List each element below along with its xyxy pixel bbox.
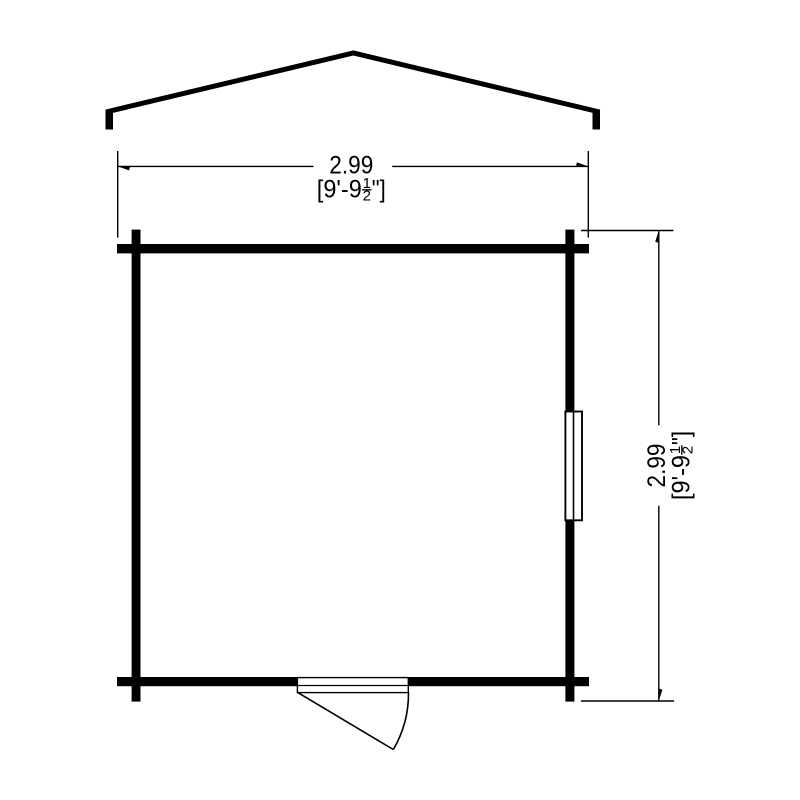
svg-text:[9'-9: [9'-9 — [668, 455, 696, 500]
svg-text:"]: "] — [372, 176, 386, 204]
svg-text:[9'-9: [9'-9 — [317, 176, 362, 204]
svg-text:"]: "] — [668, 431, 696, 445]
svg-text:2: 2 — [680, 446, 697, 454]
svg-text:2: 2 — [363, 188, 371, 205]
